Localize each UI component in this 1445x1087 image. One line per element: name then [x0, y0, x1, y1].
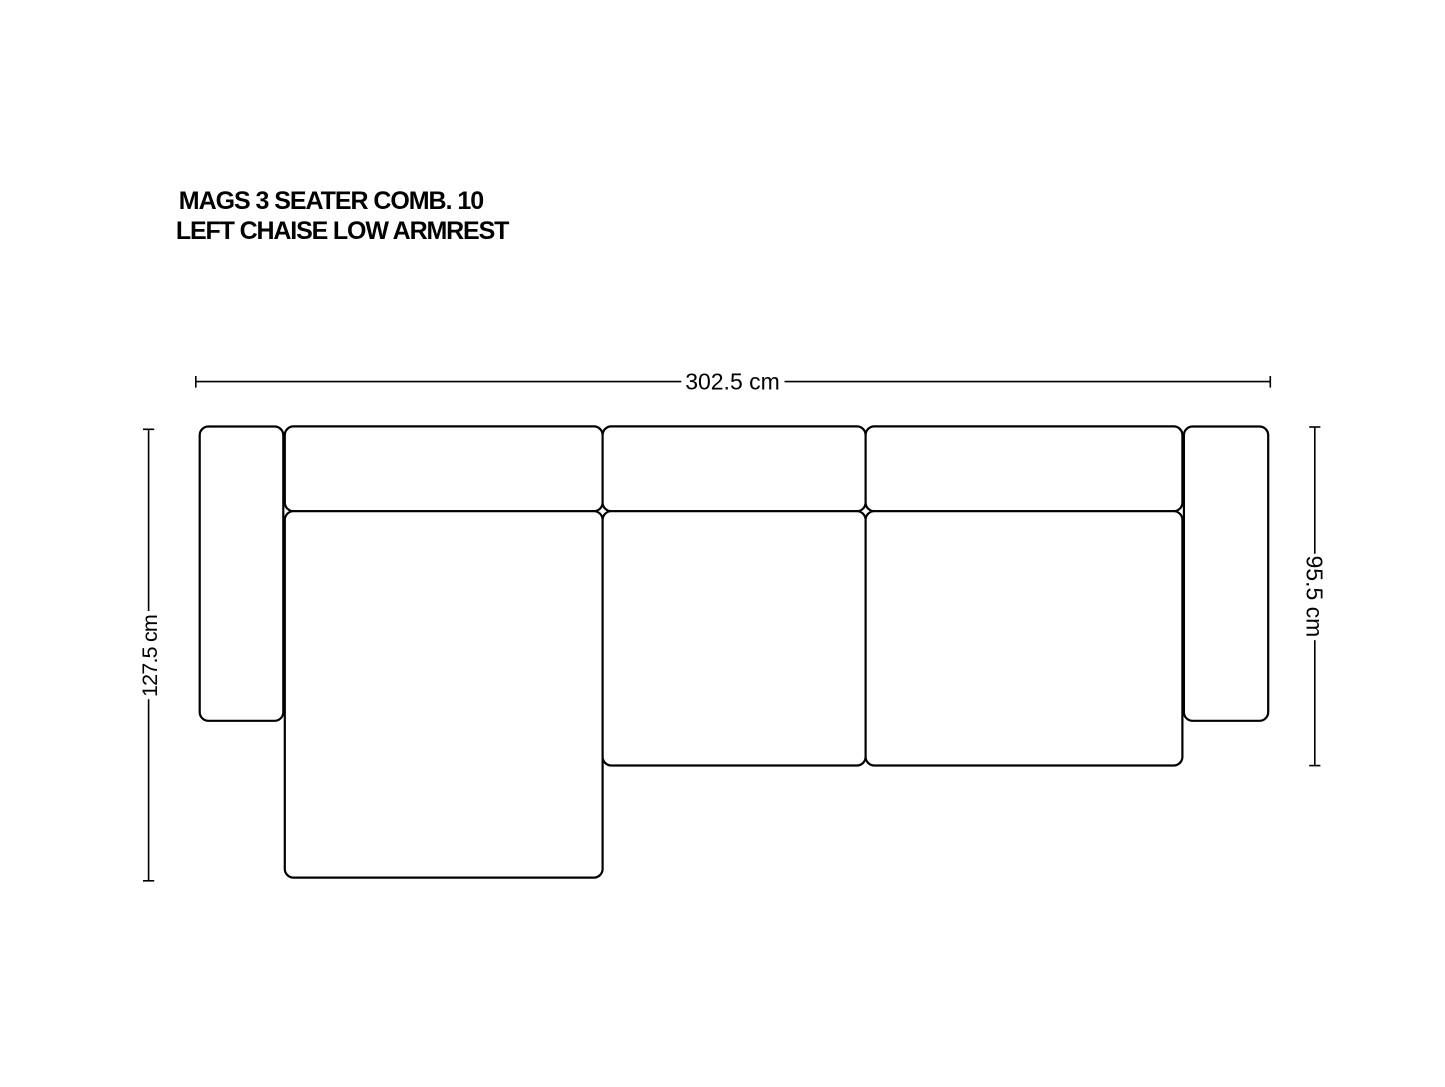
svg-text:95.5 cm: 95.5 cm: [1302, 555, 1328, 637]
svg-text:MAGS 3 SEATER COMB. 10: MAGS 3 SEATER COMB. 10: [179, 187, 483, 215]
svg-text:127.5 cm: 127.5 cm: [138, 615, 162, 697]
svg-text:LEFT CHAISE LOW ARMREST: LEFT CHAISE LOW ARMREST: [176, 217, 509, 245]
svg-text:302.5 cm: 302.5 cm: [685, 368, 780, 394]
